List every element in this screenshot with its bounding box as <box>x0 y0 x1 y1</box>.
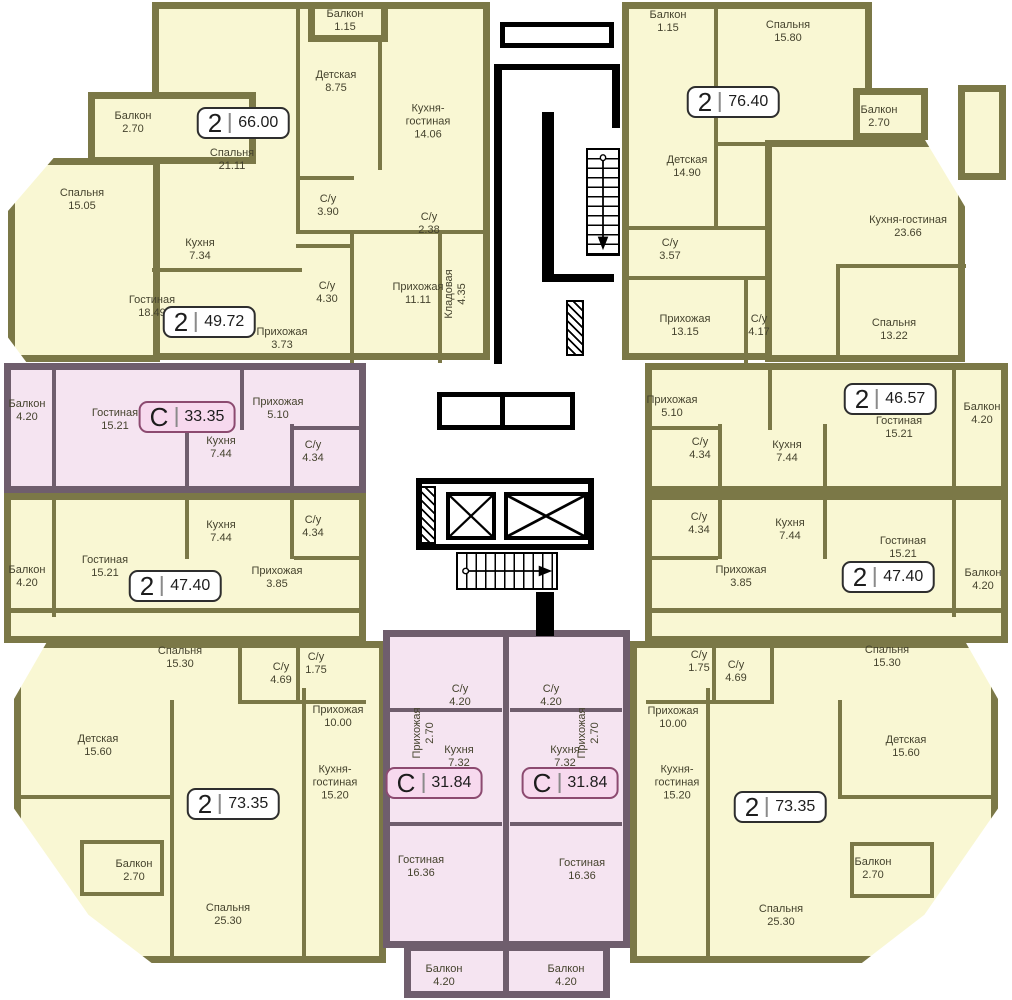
room-label: Балкон2.70 <box>861 104 898 130</box>
badge-divider <box>876 389 878 409</box>
room-label: Детская15.60 <box>886 734 927 760</box>
wall <box>503 632 509 946</box>
room-name: Детская <box>667 154 708 167</box>
wall <box>714 142 874 146</box>
room-label: С/у4.34 <box>688 511 709 537</box>
room-label: Балкон1.15 <box>327 8 364 34</box>
room-name: Балкон <box>327 8 364 21</box>
room-name: Прихожая <box>253 396 304 409</box>
wall <box>503 944 509 998</box>
room-area: 4.20 <box>965 580 1002 593</box>
wall <box>768 366 772 430</box>
room-area: 15.30 <box>158 658 202 671</box>
room-area: 14.06 <box>406 128 451 141</box>
room-area: 3.90 <box>317 206 338 219</box>
room-name: Кладовая <box>443 269 456 318</box>
room-name: Кухня- <box>313 764 358 777</box>
room-name: Детская <box>316 69 357 82</box>
wall <box>185 424 189 490</box>
wall <box>294 556 366 560</box>
room-label: С/у1.75 <box>305 651 326 677</box>
room-label: С/у4.34 <box>689 436 710 462</box>
room-label: Прихожая2.70 <box>576 708 602 759</box>
staircase-icon <box>586 148 620 256</box>
badge-divider <box>766 797 768 817</box>
wall <box>294 426 366 430</box>
room-label: Гостиная15.21 <box>92 407 138 433</box>
wall <box>838 795 998 799</box>
room-area: 7.34 <box>185 250 214 263</box>
staircase-icon <box>456 552 558 590</box>
room-name: Кухня <box>772 439 801 452</box>
room-label: Прихожая10.00 <box>648 705 699 731</box>
room-area: 2.70 <box>115 123 152 136</box>
wall <box>645 608 1008 613</box>
room-name: Спальня <box>206 902 250 915</box>
room-label: Гостиная16.36 <box>559 857 605 883</box>
wall <box>952 366 956 490</box>
apartment-type: 2 <box>208 110 222 136</box>
room-label: Кухня7.44 <box>206 519 235 545</box>
apartment-area: 73.35 <box>775 799 815 815</box>
room-area: 15.30 <box>865 657 909 670</box>
wall <box>152 268 302 272</box>
wall <box>718 424 722 490</box>
room-area: 4.34 <box>689 449 710 462</box>
apartment-badge: С31.84 <box>386 767 483 799</box>
room-area: 4.69 <box>270 674 291 687</box>
room-area: 1.75 <box>305 664 326 677</box>
room-name: Прихожая <box>647 394 698 407</box>
room-label: Спальня25.30 <box>759 903 803 929</box>
room-area: 2.70 <box>116 871 153 884</box>
room-label: Балкон4.20 <box>9 564 46 590</box>
room-label: С/у4.69 <box>725 659 746 685</box>
room-area: 1.15 <box>327 21 364 34</box>
badge-divider <box>422 773 424 793</box>
wall <box>302 688 306 958</box>
room-area: 10.00 <box>313 717 364 730</box>
room-label: С/у4.34 <box>302 439 323 465</box>
room-label: С/у4.69 <box>270 661 291 687</box>
room-name: Кухня <box>206 435 235 448</box>
wall <box>296 2 300 234</box>
room-area: 4.20 <box>964 414 1001 427</box>
room-name: Детская <box>78 733 119 746</box>
room-label: Кухня7.44 <box>775 517 804 543</box>
apartment-badge: 247.40 <box>129 570 222 602</box>
room-area: 1.15 <box>650 22 687 35</box>
apartment-badge: С31.84 <box>522 767 619 799</box>
room-name: Кухня-гостиная <box>869 214 947 227</box>
room-label: Спальня15.30 <box>158 645 202 671</box>
room-area: 8.75 <box>316 82 357 95</box>
badge-divider <box>219 794 221 814</box>
room-name: С/у <box>302 439 323 452</box>
block-apartment-76-kitchen <box>765 140 965 362</box>
room-area: 5.10 <box>647 407 698 420</box>
room-area: 15.21 <box>92 420 138 433</box>
room-name: Кухня- <box>406 103 451 116</box>
room-area: 2.38 <box>418 224 439 237</box>
apartment-type: 2 <box>198 791 212 817</box>
room-area: 15.60 <box>78 746 119 759</box>
room-area: 4.34 <box>302 452 323 465</box>
wall <box>648 426 718 430</box>
room-label: С/у3.90 <box>317 193 338 219</box>
badge-divider <box>229 113 231 133</box>
wall <box>510 708 622 712</box>
wall <box>952 493 956 617</box>
room-name: С/у <box>725 659 746 672</box>
room-area: 3.85 <box>716 577 767 590</box>
room-name: гостиная <box>406 116 451 129</box>
room-name: Балкон <box>548 963 585 976</box>
apartment-type: 2 <box>853 564 867 590</box>
room-name: Балкон <box>115 110 152 123</box>
room-area: 15.21 <box>876 428 922 441</box>
room-area: 4.34 <box>688 524 709 537</box>
room-name: гостиная <box>655 777 700 790</box>
room-label: Гостиная15.21 <box>82 554 128 580</box>
room-name: Прихожая <box>252 565 303 578</box>
room-label: Прихожая5.10 <box>253 396 304 422</box>
room-label: Детская15.60 <box>78 733 119 759</box>
room-area: 4.69 <box>725 672 746 685</box>
room-area: 2.70 <box>855 869 892 882</box>
room-area: 3.57 <box>659 250 680 263</box>
room-name: С/у <box>270 661 291 674</box>
wall <box>296 645 300 703</box>
wall <box>823 424 827 490</box>
wall <box>823 493 827 559</box>
room-label: Балкон4.20 <box>964 401 1001 427</box>
room-area: 16.36 <box>398 867 444 880</box>
wall <box>390 822 502 826</box>
room-label: С/у4.20 <box>540 683 561 709</box>
room-name: Балкон <box>426 963 463 976</box>
apartment-badge: С33.35 <box>139 401 236 433</box>
core-wall <box>536 592 554 636</box>
room-name: Прихожая <box>257 326 308 339</box>
room-label: Прихожая3.73 <box>257 326 308 352</box>
room-name: гостиная <box>313 777 358 790</box>
room-area: 15.60 <box>886 747 927 760</box>
room-area: 4.20 <box>9 411 46 424</box>
apartment-badge: 276.40 <box>687 86 780 118</box>
room-area: 15.80 <box>766 32 810 45</box>
wall <box>52 366 56 490</box>
room-name: Спальня <box>210 147 254 160</box>
wall <box>378 40 382 170</box>
room-label: Прихожая3.85 <box>252 565 303 591</box>
room-label: С/у3.57 <box>659 237 680 263</box>
room-area: 5.10 <box>253 409 304 422</box>
room-label: Спальня15.30 <box>865 644 909 670</box>
room-name: Балкон <box>861 104 898 117</box>
room-name: С/у <box>540 683 561 696</box>
room-label: С/у4.20 <box>449 683 470 709</box>
room-label: Кухня7.44 <box>206 435 235 461</box>
room-area: 13.22 <box>872 330 916 343</box>
wall <box>238 645 242 703</box>
room-label: Гостиная16.36 <box>398 854 444 880</box>
room-area: 2.70 <box>589 708 602 759</box>
apartment-area: 49.72 <box>204 314 244 330</box>
apartment-area: 73.35 <box>228 796 268 812</box>
wall <box>836 264 840 362</box>
room-name: Гостиная <box>92 407 138 420</box>
wall <box>296 244 354 248</box>
apartment-area: 76.40 <box>728 94 768 110</box>
room-label: С/у2.38 <box>418 211 439 237</box>
room-label: Кухня-гостиная15.20 <box>313 764 358 803</box>
room-name: Балкон <box>9 398 46 411</box>
room-label: Балкон4.20 <box>548 963 585 989</box>
room-area: 4.20 <box>548 976 585 989</box>
room-name: С/у <box>317 193 338 206</box>
badge-divider <box>175 407 177 427</box>
wall <box>170 700 174 958</box>
room-label: Балкон4.20 <box>965 567 1002 593</box>
core-wall <box>494 64 502 364</box>
apartment-type: 2 <box>745 794 759 820</box>
room-name: Кухня <box>444 744 473 757</box>
room-name: Прихожая <box>313 704 364 717</box>
room-area: 21.11 <box>210 160 254 173</box>
apartment-badge: 273.35 <box>734 791 827 823</box>
room-area: 4.30 <box>316 293 337 306</box>
wall <box>350 234 354 363</box>
room-label: Спальня15.05 <box>60 187 104 213</box>
apartment-badge: 249.72 <box>163 306 256 338</box>
room-name: Прихожая <box>393 281 444 294</box>
room-label: Прихожая11.11 <box>393 281 444 307</box>
room-name: Прихожая <box>716 564 767 577</box>
room-label: Прихожая5.10 <box>647 394 698 420</box>
apartment-area: 66.00 <box>238 115 278 131</box>
room-area: 4.20 <box>426 976 463 989</box>
wall <box>290 493 294 559</box>
room-name: Кухня <box>775 517 804 530</box>
wall <box>646 700 774 704</box>
room-label: Кладовая4.35 <box>443 269 469 318</box>
apartment-type: С <box>150 404 169 430</box>
wall <box>296 230 490 234</box>
room-name: Балкон <box>964 401 1001 414</box>
room-area: 10.00 <box>648 718 699 731</box>
room-name: С/у <box>305 651 326 664</box>
room-area: 15.20 <box>313 789 358 802</box>
room-label: Балкон2.70 <box>855 856 892 882</box>
room-area: 4.17 <box>748 326 769 339</box>
block-bay-right <box>958 85 1006 180</box>
wall <box>648 556 718 560</box>
room-name: С/у <box>689 436 710 449</box>
room-name: Балкон <box>965 567 1002 580</box>
room-area: 13.15 <box>660 326 711 339</box>
room-name: Гостиная <box>82 554 128 567</box>
apartment-badge: 247.40 <box>842 561 935 593</box>
room-area: 14.90 <box>667 167 708 180</box>
room-area: 15.21 <box>880 548 926 561</box>
wall <box>622 226 768 230</box>
room-area: 4.20 <box>9 577 46 590</box>
core-wall <box>612 64 620 128</box>
room-area: 11.11 <box>393 294 444 307</box>
room-name: С/у <box>659 237 680 250</box>
badge-divider <box>719 92 721 112</box>
room-label: Детская14.90 <box>667 154 708 180</box>
room-area: 7.44 <box>775 530 804 543</box>
apartment-badge: 273.35 <box>187 788 280 820</box>
room-name: Спальня <box>865 644 909 657</box>
room-name: Прихожая <box>660 313 711 326</box>
room-area: 23.66 <box>869 227 947 240</box>
room-area: 1.75 <box>688 662 709 675</box>
room-label: Балкон2.70 <box>116 858 153 884</box>
room-area: 15.20 <box>655 789 700 802</box>
room-name: Спальня <box>759 903 803 916</box>
room-label: Балкон4.20 <box>426 963 463 989</box>
room-name: Балкон <box>116 858 153 871</box>
room-label: Спальня21.11 <box>210 147 254 173</box>
core-wall <box>542 274 614 282</box>
room-label: Кухня-гостиная15.20 <box>655 764 700 803</box>
room-name: Кухня <box>185 237 214 250</box>
room-area: 2.70 <box>861 117 898 130</box>
room-area: 3.73 <box>257 339 308 352</box>
wall <box>712 645 716 703</box>
room-area: 25.30 <box>759 916 803 929</box>
room-area: 4.35 <box>456 269 469 318</box>
room-label: Детская8.75 <box>316 69 357 95</box>
room-name: Балкон <box>650 9 687 22</box>
wall <box>240 366 244 430</box>
badge-divider <box>874 567 876 587</box>
apartment-type: 2 <box>174 309 188 335</box>
room-label: Прихожая2.70 <box>411 708 437 759</box>
core-wall <box>494 64 620 70</box>
elevator-icon <box>504 492 588 540</box>
apartment-area: 31.84 <box>567 775 607 791</box>
room-label: С/у4.17 <box>748 313 769 339</box>
room-name: С/у <box>688 511 709 524</box>
apartment-area: 47.40 <box>883 569 923 585</box>
room-name: Гостиная <box>559 857 605 870</box>
room-name: Спальня <box>872 317 916 330</box>
core-wall <box>500 392 505 430</box>
room-name: Гостиная <box>876 415 922 428</box>
room-label: Кухня7.34 <box>185 237 214 263</box>
wall <box>290 424 294 490</box>
room-area: 4.34 <box>302 527 323 540</box>
apartment-type: С <box>397 770 416 796</box>
room-name: Кухня <box>206 519 235 532</box>
apartment-type: 2 <box>140 573 154 599</box>
wall <box>718 493 722 559</box>
wall <box>296 176 354 180</box>
wall <box>390 708 502 712</box>
room-area: 7.44 <box>206 448 235 461</box>
shaft-hatch <box>566 300 584 356</box>
room-label: Прихожая13.15 <box>660 313 711 339</box>
wall <box>185 493 189 559</box>
room-name: Прихожая <box>411 708 424 759</box>
wall <box>14 795 174 799</box>
room-label: Прихожая3.85 <box>716 564 767 590</box>
room-area: 4.20 <box>449 696 470 709</box>
shaft-hatch <box>420 486 436 544</box>
room-name: Кухня- <box>655 764 700 777</box>
entrance-lobby-top <box>500 22 614 48</box>
room-area: 4.20 <box>540 696 561 709</box>
room-name: С/у <box>418 211 439 224</box>
room-name: Прихожая <box>648 705 699 718</box>
wall <box>836 264 966 268</box>
room-area: 25.30 <box>206 915 250 928</box>
wall <box>838 700 842 798</box>
wall <box>510 822 622 826</box>
room-label: Спальня25.30 <box>206 902 250 928</box>
room-label: Спальня15.80 <box>766 19 810 45</box>
room-label: Балкон4.20 <box>9 398 46 424</box>
apartment-area: 46.57 <box>885 391 925 407</box>
room-name: С/у <box>302 514 323 527</box>
room-area: 7.44 <box>772 452 801 465</box>
room-area: 2.70 <box>424 708 437 759</box>
room-name: Балкон <box>9 564 46 577</box>
room-label: Кухня-гостиная14.06 <box>406 103 451 142</box>
room-label: Спальня13.22 <box>872 317 916 343</box>
room-area: 15.21 <box>82 567 128 580</box>
badge-divider <box>558 773 560 793</box>
apartment-type: 2 <box>698 89 712 115</box>
core-wall <box>542 112 554 280</box>
room-label: Гостиная15.21 <box>876 415 922 441</box>
wall <box>706 688 710 958</box>
room-name: Гостиная <box>880 535 926 548</box>
room-name: С/у <box>688 649 709 662</box>
apartment-type: 2 <box>855 386 869 412</box>
floor-plan: Балкон2.70Спальня15.05Спальня21.11Балкон… <box>0 0 1012 1000</box>
wall <box>770 645 774 703</box>
elevator-icon <box>446 492 496 540</box>
room-label: С/у4.34 <box>302 514 323 540</box>
room-label: Прихожая10.00 <box>313 704 364 730</box>
room-name: Кухня <box>550 744 579 757</box>
room-name: Спальня <box>158 645 202 658</box>
room-label: Кухня7.44 <box>772 439 801 465</box>
room-area: 15.05 <box>60 200 104 213</box>
badge-divider <box>195 312 197 332</box>
room-label: С/у4.30 <box>316 280 337 306</box>
apartment-area: 33.35 <box>184 409 224 425</box>
room-label: Кухня-гостиная23.66 <box>869 214 947 240</box>
room-name: Гостиная <box>398 854 444 867</box>
room-area: 16.36 <box>559 870 605 883</box>
badge-divider <box>161 576 163 596</box>
room-name: Детская <box>886 734 927 747</box>
apartment-type: С <box>533 770 552 796</box>
room-area: 7.44 <box>206 532 235 545</box>
room-name: Спальня <box>766 19 810 32</box>
apartment-area: 31.84 <box>431 775 471 791</box>
room-name: Балкон <box>855 856 892 869</box>
room-label: Балкон2.70 <box>115 110 152 136</box>
room-name: Спальня <box>60 187 104 200</box>
room-area: 3.85 <box>252 578 303 591</box>
